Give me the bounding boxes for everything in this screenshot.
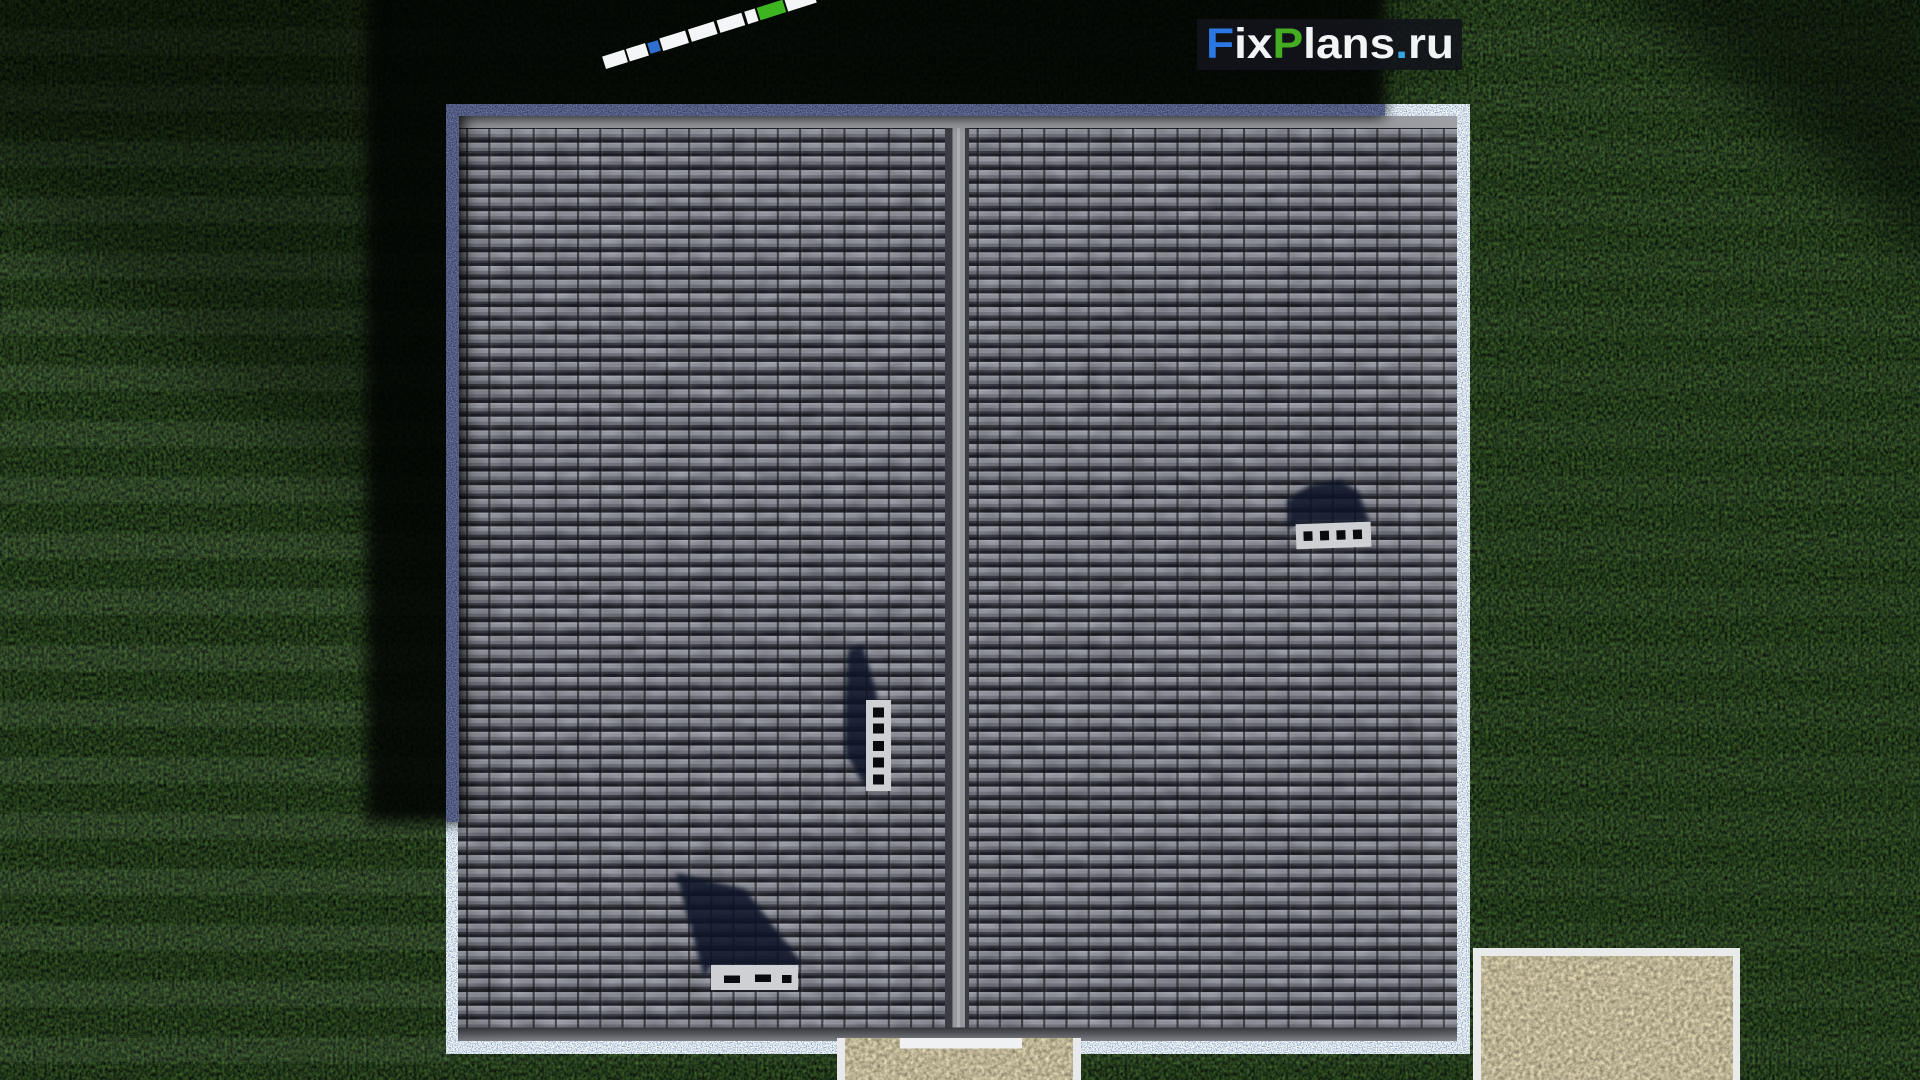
svg-text:FixPlans.ru: FixPlans.ru	[1206, 20, 1454, 68]
